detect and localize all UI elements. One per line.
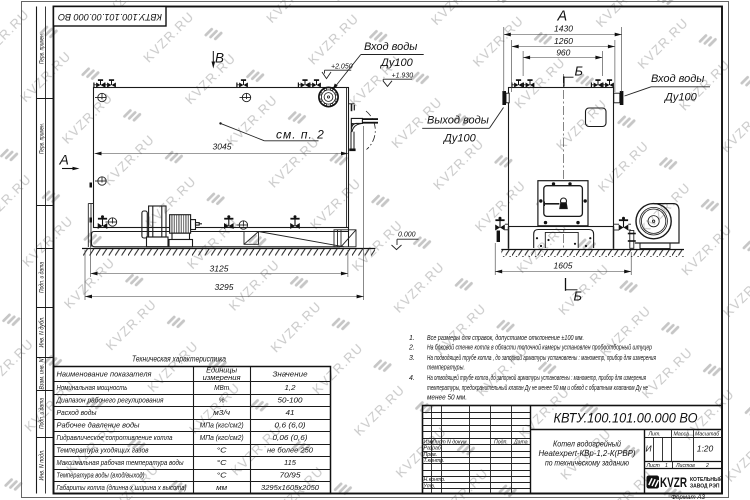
svg-text:3295: 3295 bbox=[215, 282, 234, 292]
svg-text:Лит.: Лит. bbox=[648, 431, 661, 437]
svg-text:KVZR: KVZR bbox=[660, 474, 687, 490]
svg-text:Рабочее давление воды: Рабочее давление воды bbox=[57, 421, 141, 430]
svg-text:Значение: Значение bbox=[273, 370, 308, 379]
svg-text:Расход воды: Расход воды bbox=[57, 408, 98, 417]
svg-text:Техническая характеристика: Техническая характеристика bbox=[132, 355, 226, 364]
svg-text:Диапазон рабочего регулировани: Диапазон рабочего регулирования bbox=[56, 396, 164, 405]
svg-text:не более 250: не более 250 bbox=[267, 446, 313, 455]
svg-text:Выход воды: Выход воды bbox=[427, 115, 489, 127]
svg-text:КВТУ.100.101.00.000 ВО: КВТУ.100.101.00.000 ВО bbox=[554, 411, 698, 426]
svg-text:Габариты котла (длинна х ширин: Габариты котла (длинна х ширина х высота… bbox=[57, 483, 187, 492]
svg-text:МПа (кгс/см2): МПа (кгс/см2) bbox=[200, 433, 244, 442]
svg-text:B: B bbox=[215, 51, 224, 66]
svg-text:На подводящей трубе котла ,: На подводящей трубе котла , до запорной … bbox=[427, 354, 656, 362]
svg-text:4.: 4. bbox=[409, 375, 415, 382]
svg-text:температуры.: температуры. bbox=[427, 365, 465, 372]
svg-text:измерения: измерения bbox=[203, 373, 241, 382]
svg-text:На боковой стенке котла в обла: На боковой стенке котла в области топочн… bbox=[427, 344, 652, 352]
svg-text:Листов: Листов bbox=[675, 463, 695, 469]
svg-text:1260: 1260 bbox=[554, 36, 573, 46]
svg-text:мм: мм bbox=[216, 483, 227, 492]
svg-text:Подп. и дата: Подп. и дата bbox=[38, 262, 46, 293]
svg-text:Б: Б bbox=[574, 289, 583, 304]
svg-text:КВТУ.100.101.00.000 ВО: КВТУ.100.101.00.000 ВО bbox=[57, 11, 162, 22]
svg-text:см. п. 2: см. п. 2 bbox=[276, 128, 325, 142]
svg-text:%: % bbox=[219, 396, 225, 405]
svg-text:°С: °С bbox=[217, 446, 228, 455]
svg-text:115: 115 bbox=[284, 458, 297, 467]
svg-text:Б: Б bbox=[575, 64, 584, 79]
svg-text:960: 960 bbox=[556, 47, 570, 57]
svg-text:Температура уходящих газов: Температура уходящих газов bbox=[57, 446, 149, 455]
svg-text:Н.контр.: Н.контр. bbox=[424, 477, 446, 483]
svg-text:3045: 3045 bbox=[213, 142, 232, 152]
svg-text:И: И bbox=[645, 444, 652, 454]
svg-text:Наименование показателя: Наименование показателя bbox=[57, 370, 152, 379]
svg-text:м3/ч: м3/ч bbox=[213, 408, 230, 417]
svg-text:Лист: Лист bbox=[646, 463, 661, 469]
svg-text:Дата: Дата bbox=[513, 439, 528, 445]
svg-text:Т.контр.: Т.контр. bbox=[424, 458, 445, 464]
svg-text:0.000: 0.000 bbox=[398, 232, 416, 239]
svg-text:+2.050: +2.050 bbox=[331, 64, 353, 71]
svg-text:3125: 3125 bbox=[210, 264, 229, 274]
svg-text:Формат А3: Формат А3 bbox=[671, 494, 705, 500]
svg-text:A: A bbox=[557, 9, 568, 25]
svg-text:ЗАВОД РЭП: ЗАВОД РЭП bbox=[690, 484, 720, 490]
svg-text:Вход воды: Вход воды bbox=[364, 41, 417, 53]
svg-text:N докум.: N докум. bbox=[447, 439, 468, 445]
svg-text:3295х1605х2050: 3295х1605х2050 bbox=[261, 483, 319, 492]
svg-text:0,06 (0,6): 0,06 (0,6) bbox=[273, 433, 308, 442]
svg-text:Инв. N дубл.: Инв. N дубл. bbox=[38, 317, 46, 348]
svg-text:1430: 1430 bbox=[554, 24, 573, 34]
svg-text:A: A bbox=[59, 152, 69, 168]
svg-text:41: 41 bbox=[286, 408, 295, 417]
svg-text:МВт: МВт bbox=[214, 383, 229, 392]
svg-text:Масштаб: Масштаб bbox=[695, 431, 720, 437]
svg-text:Лист: Лист bbox=[431, 439, 446, 445]
svg-text:Инв. N подл.: Инв. N подл. bbox=[38, 450, 46, 481]
svg-text:2.: 2. bbox=[408, 345, 415, 352]
svg-text:На отводящей трубе котла ,до з: На отводящей трубе котла ,до запорной ар… bbox=[427, 374, 646, 382]
svg-text:Пров.: Пров. bbox=[424, 452, 438, 458]
svg-text:Heatexpert-КВр-1,2-К(РВР): Heatexpert-КВр-1,2-К(РВР) bbox=[539, 449, 636, 458]
svg-text:Максимальная рабочая температу: Максимальная рабочая температура воды bbox=[57, 458, 185, 467]
svg-text:1605: 1605 bbox=[554, 261, 573, 271]
svg-text:Ду100: Ду100 bbox=[663, 92, 698, 104]
svg-text:Утв.: Утв. bbox=[424, 483, 436, 489]
svg-text:1.: 1. bbox=[409, 335, 415, 342]
svg-text:1:20: 1:20 bbox=[697, 444, 714, 454]
svg-text:70/95: 70/95 bbox=[280, 471, 302, 480]
svg-text:Температура воды (вход/выход): Температура воды (вход/выход) bbox=[57, 471, 145, 480]
svg-text:Перв. примен.: Перв. примен. bbox=[39, 33, 46, 64]
svg-text:°С: °С bbox=[217, 458, 228, 467]
svg-text:Взам. инв. N: Взам. инв. N bbox=[39, 358, 46, 389]
svg-text:Подп.: Подп. bbox=[494, 439, 508, 445]
svg-text:менее 50 мм.: менее 50 мм. bbox=[427, 395, 467, 402]
svg-text:по техническому заданию: по техническому заданию bbox=[545, 458, 629, 467]
svg-text:Разраб.: Разраб. bbox=[424, 446, 443, 452]
svg-text:0,6 (6,0): 0,6 (6,0) bbox=[275, 421, 306, 430]
svg-text:Все размеры для справок, допус: Все размеры для справок, допустимое откл… bbox=[427, 334, 584, 342]
svg-text:Ду100: Ду100 bbox=[379, 57, 414, 69]
svg-text:50-100: 50-100 bbox=[278, 396, 303, 405]
svg-text:1: 1 bbox=[665, 463, 668, 469]
svg-text:°С: °С bbox=[217, 471, 228, 480]
svg-text:Гидравлическое сопротивление к: Гидравлическое сопротивление котла bbox=[57, 433, 173, 442]
svg-text:КОТЕЛЬНЫЙ: КОТЕЛЬНЫЙ bbox=[690, 475, 723, 483]
svg-text:Номинальная мощность: Номинальная мощность bbox=[57, 383, 128, 392]
svg-text:2: 2 bbox=[705, 463, 709, 469]
svg-text:Ду100: Ду100 bbox=[442, 133, 477, 145]
svg-text:Вход воды: Вход воды bbox=[651, 73, 704, 85]
svg-text:Подп. и дата: Подп. и дата bbox=[38, 398, 46, 429]
svg-text:Котел водогрейный: Котел водогрейный bbox=[553, 440, 622, 449]
svg-text:МПа (кгс/см2): МПа (кгс/см2) bbox=[200, 421, 244, 430]
svg-text:1,2: 1,2 bbox=[285, 383, 296, 392]
svg-text:Масса: Масса bbox=[674, 431, 689, 437]
svg-text:+1.930: +1.930 bbox=[392, 73, 414, 80]
svg-text:Перв. примен.: Перв. примен. bbox=[39, 123, 46, 154]
svg-text:температуры, предохранительный: температуры, предохранительный клапан Ду… bbox=[427, 384, 648, 392]
svg-text:3.: 3. bbox=[409, 355, 415, 362]
